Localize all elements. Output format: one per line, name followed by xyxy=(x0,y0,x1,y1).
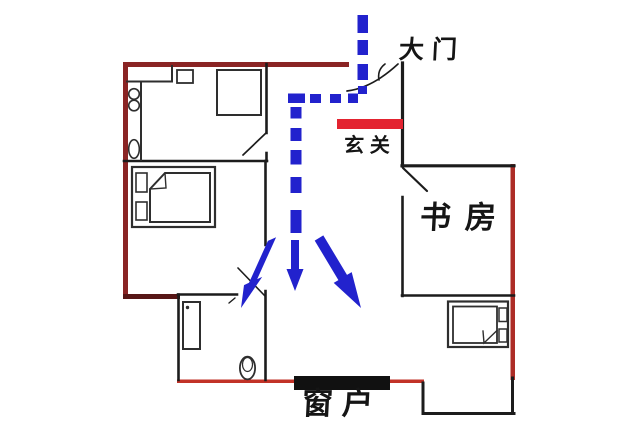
entryway-label: 玄关 xyxy=(343,135,396,155)
floor-plan: 大门 玄关 书房 窗户 xyxy=(0,0,640,436)
left-bottom-jog-wall xyxy=(123,294,180,299)
flow-dash xyxy=(291,107,302,119)
top-wall xyxy=(123,62,349,67)
right-wall xyxy=(511,164,516,380)
main-door-label: 大门 xyxy=(398,37,465,62)
bottom-wall-left xyxy=(177,380,295,384)
washing-machine xyxy=(183,302,200,349)
pillow xyxy=(499,329,507,342)
pillow xyxy=(136,173,147,192)
outer-walls-black xyxy=(402,63,514,414)
window-label: 窗户 xyxy=(301,389,383,420)
flow-arrow-middle xyxy=(287,240,304,291)
bedroom2-outer-corner-wall xyxy=(423,383,514,414)
stove-burner xyxy=(129,89,140,100)
entry-screen-bar xyxy=(337,119,403,129)
flow-dash xyxy=(291,210,302,233)
kitchen-table xyxy=(217,70,261,115)
flow-arrow-left xyxy=(241,237,276,308)
mattress xyxy=(150,173,210,222)
flow-dash xyxy=(358,40,369,55)
left-wall xyxy=(123,62,128,299)
bottom-wall-right xyxy=(390,380,424,384)
pillow xyxy=(499,308,507,322)
study-door-leaf xyxy=(403,168,427,191)
flow-dash xyxy=(310,94,321,103)
kitchen-door-leaf xyxy=(243,133,266,155)
bed-frame xyxy=(132,167,215,227)
flow-dash xyxy=(330,94,341,103)
flow-dash xyxy=(291,177,302,193)
flow-dash xyxy=(348,94,358,104)
stove-burner xyxy=(129,100,140,111)
mattress2-fold xyxy=(483,331,497,344)
main-door-arc xyxy=(347,64,398,91)
study-room-label: 书房 xyxy=(419,203,511,234)
washing-machine-knob xyxy=(186,306,189,309)
flow-dash xyxy=(358,86,367,94)
floor-plan-drawing xyxy=(0,0,640,436)
flow-dash xyxy=(358,15,369,33)
pillow xyxy=(136,202,147,220)
bathroom-door-leaf-dash xyxy=(229,298,235,303)
flow-dash xyxy=(358,64,369,80)
flow-dash xyxy=(288,94,305,104)
toilet-seat xyxy=(243,358,253,372)
toilet xyxy=(240,357,255,380)
flow-dash xyxy=(291,150,302,165)
flow-dash xyxy=(291,128,302,141)
flow-arrow-right xyxy=(315,235,361,308)
kitchen-sink xyxy=(129,140,140,159)
kitchen-stool xyxy=(177,70,193,83)
